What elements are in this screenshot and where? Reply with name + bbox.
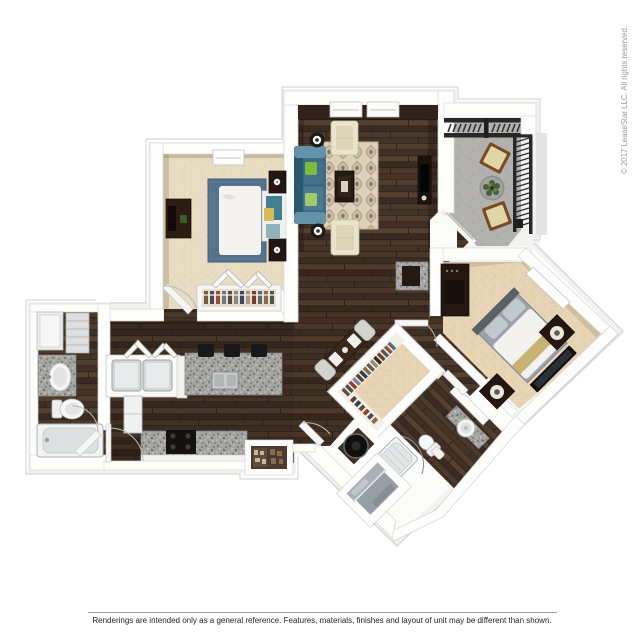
svg-text:Renderings are intended only a: Renderings are intended only as a genera…	[92, 616, 551, 625]
svg-text:© 2017 LeaseStar LLC. All righ: © 2017 LeaseStar LLC. All rights reserve…	[620, 26, 629, 174]
